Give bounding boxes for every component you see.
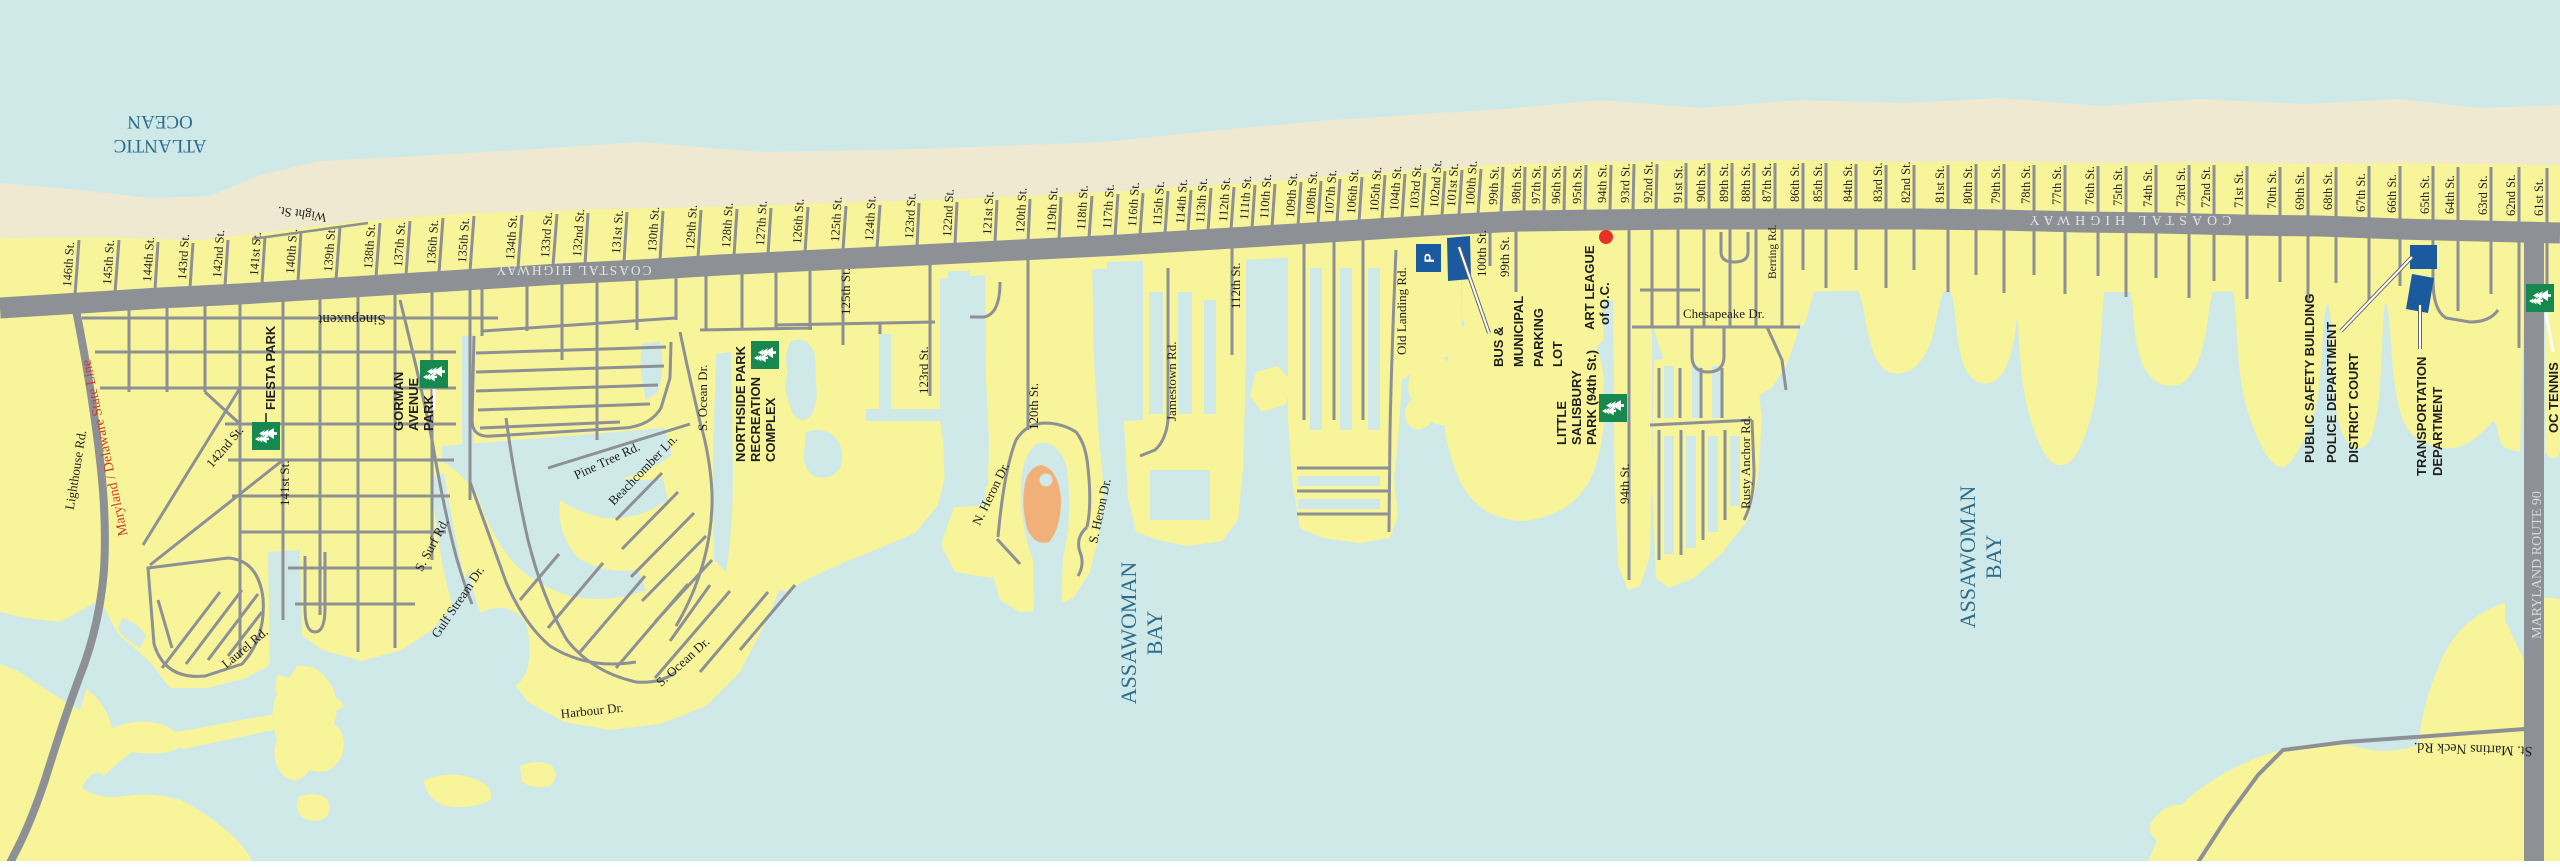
svg-text:125th St.: 125th St. [838, 268, 853, 315]
svg-text:88th St.: 88th St. [1739, 163, 1753, 202]
svg-text:MARYLAND ROUTE 90: MARYLAND ROUTE 90 [2530, 491, 2545, 639]
svg-text:119th St.: 119th St. [1044, 187, 1060, 232]
svg-text:99th St.: 99th St. [1486, 166, 1502, 206]
svg-text:97th St.: 97th St. [1529, 165, 1543, 204]
svg-text:BUS &: BUS & [1491, 327, 1506, 367]
svg-text:OC TENNIS: OC TENNIS [2546, 362, 2560, 433]
svg-text:PARKING: PARKING [1531, 308, 1546, 367]
svg-text:BAY: BAY [1142, 611, 1167, 656]
svg-text:TRANSPORTATION: TRANSPORTATION [2414, 357, 2429, 476]
svg-text:122nd St.: 122nd St. [940, 189, 957, 238]
svg-text:77th St.: 77th St. [2050, 166, 2064, 205]
svg-text:120th St.: 120th St. [1026, 383, 1041, 430]
svg-text:123rd St.: 123rd St. [916, 346, 931, 394]
svg-text:COASTAL HIGHWAY: COASTAL HIGHWAY [494, 263, 651, 278]
svg-text:ASSAWOMAN: ASSAWOMAN [1955, 486, 1980, 629]
svg-text:84th St.: 84th St. [1841, 163, 1855, 202]
svg-text:94th St.: 94th St. [1595, 164, 1609, 203]
svg-text:P: P [1421, 253, 1437, 262]
svg-text:of O.C.: of O.C. [1597, 282, 1612, 325]
svg-text:76th St.: 76th St. [2083, 166, 2097, 205]
svg-text:87th St.: 87th St. [1760, 163, 1774, 202]
svg-text:GORMAN: GORMAN [391, 372, 406, 431]
svg-text:79th St.: 79th St. [1989, 165, 2003, 204]
svg-text:POLICE DEPARTMENT: POLICE DEPARTMENT [2324, 322, 2339, 463]
svg-text:112th St.: 112th St. [1228, 263, 1243, 309]
svg-text:89th St.: 89th St. [1717, 163, 1731, 202]
svg-text:128th St.: 128th St. [719, 202, 736, 248]
svg-text:AVENUE: AVENUE [406, 377, 421, 431]
svg-text:80th St.: 80th St. [1961, 165, 1975, 204]
svg-text:96th St.: 96th St. [1549, 165, 1563, 204]
svg-text:94th St.: 94th St. [1617, 464, 1632, 504]
svg-text:68th St.: 68th St. [2321, 171, 2335, 210]
svg-text:65th St.: 65th St. [2418, 175, 2432, 214]
svg-text:90th St.: 90th St. [1694, 163, 1708, 202]
svg-text:PARK: PARK [421, 395, 436, 431]
svg-text:SALISBURY: SALISBURY [1569, 370, 1584, 445]
svg-text:69th St.: 69th St. [2293, 171, 2307, 210]
svg-text:FIESTA PARK: FIESTA PARK [263, 325, 278, 410]
svg-text:62nd St.: 62nd St. [2504, 174, 2518, 216]
svg-text:81st St.: 81st St. [1933, 165, 1947, 203]
svg-text:99th St.: 99th St. [1497, 237, 1512, 277]
svg-text:75th St.: 75th St. [2111, 167, 2125, 206]
svg-text:BAY: BAY [1981, 535, 2006, 580]
svg-text:117th St.: 117th St. [1100, 184, 1117, 229]
svg-text:NORTHSIDE PARK: NORTHSIDE PARK [733, 345, 748, 462]
svg-text:RECREATION: RECREATION [748, 377, 763, 462]
svg-text:DISTRICT COURT: DISTRICT COURT [2346, 353, 2361, 463]
svg-text:98th St.: 98th St. [1509, 165, 1524, 204]
svg-text:PARK (94th St.): PARK (94th St.) [1584, 350, 1599, 445]
svg-text:86th St.: 86th St. [1788, 163, 1802, 202]
svg-text:S. Ocean Dr.: S. Ocean Dr. [695, 365, 710, 431]
svg-text:MUNICIPAL: MUNICIPAL [1511, 296, 1526, 367]
svg-text:74th St.: 74th St. [2141, 168, 2155, 207]
svg-text:141st St.: 141st St. [277, 460, 292, 506]
svg-text:Berring Rd.: Berring Rd. [1767, 225, 1779, 279]
svg-text:126th St.: 126th St. [790, 198, 807, 244]
svg-text:100th St.: 100th St. [1474, 230, 1489, 277]
svg-text:83rd St.: 83rd St. [1871, 162, 1885, 202]
svg-text:127th St.: 127th St. [753, 200, 770, 246]
svg-text:118th St.: 118th St. [1074, 185, 1091, 230]
svg-text:91st St.: 91st St. [1671, 165, 1685, 203]
svg-text:COMPLEX: COMPLEX [763, 397, 778, 462]
svg-text:121st St.: 121st St. [980, 191, 996, 235]
svg-text:DEPARTMENT: DEPARTMENT [2430, 387, 2445, 476]
svg-text:71st St.: 71st St. [2232, 170, 2246, 208]
svg-text:85th St.: 85th St. [1811, 163, 1825, 202]
svg-text:124th St.: 124th St. [862, 195, 879, 241]
svg-text:PUBLIC SAFETY BUILDING: PUBLIC SAFETY BUILDING [2302, 294, 2317, 464]
svg-text:67th St.: 67th St. [2354, 173, 2368, 212]
svg-text:66th St.: 66th St. [2385, 174, 2399, 213]
svg-text:Old Landing Rd.: Old Landing Rd. [1394, 267, 1409, 355]
svg-text:LOT: LOT [1550, 341, 1565, 367]
svg-text:Jamestown Rd.: Jamestown Rd. [1164, 342, 1179, 421]
svg-text:61st St.: 61st St. [2532, 178, 2546, 216]
svg-text:82nd St.: 82nd St. [1899, 161, 1913, 203]
svg-text:95th St.: 95th St. [1570, 165, 1584, 204]
svg-text:120th St.: 120th St. [1013, 187, 1029, 233]
svg-text:92nd St.: 92nd St. [1641, 161, 1656, 203]
svg-text:70th St.: 70th St. [2265, 170, 2279, 209]
svg-text:93rd St.: 93rd St. [1618, 163, 1632, 203]
svg-text:123rd St.: 123rd St. [902, 193, 919, 240]
svg-text:Sinepuxent: Sinepuxent [317, 311, 385, 327]
svg-text:131st St.: 131st St. [609, 210, 626, 255]
svg-text:78th St.: 78th St. [2019, 165, 2033, 204]
svg-text:LITTLE: LITTLE [1554, 401, 1569, 445]
svg-text:ART LEAGUE: ART LEAGUE [1582, 245, 1597, 330]
svg-text:100th St.: 100th St. [1463, 160, 1480, 206]
svg-text:ATLANTIC: ATLANTIC [114, 135, 207, 156]
svg-text:Rusty Anchor Rd.: Rusty Anchor Rd. [1738, 415, 1753, 509]
svg-text:73rd St.: 73rd St. [2174, 167, 2188, 207]
svg-text:63rd St.: 63rd St. [2476, 175, 2490, 215]
svg-text:125th St.: 125th St. [828, 196, 845, 242]
svg-text:COASTAL HIGHWAY: COASTAL HIGHWAY [2024, 212, 2231, 227]
svg-text:72nd St.: 72nd St. [2199, 166, 2213, 208]
svg-text:129th St.: 129th St. [683, 204, 700, 250]
svg-text:Chesapeake Dr.: Chesapeake Dr. [1683, 306, 1765, 321]
svg-text:OCEAN: OCEAN [127, 111, 193, 132]
svg-text:ASSAWOMAN: ASSAWOMAN [1116, 562, 1141, 705]
svg-text:64th St.: 64th St. [2443, 175, 2457, 214]
